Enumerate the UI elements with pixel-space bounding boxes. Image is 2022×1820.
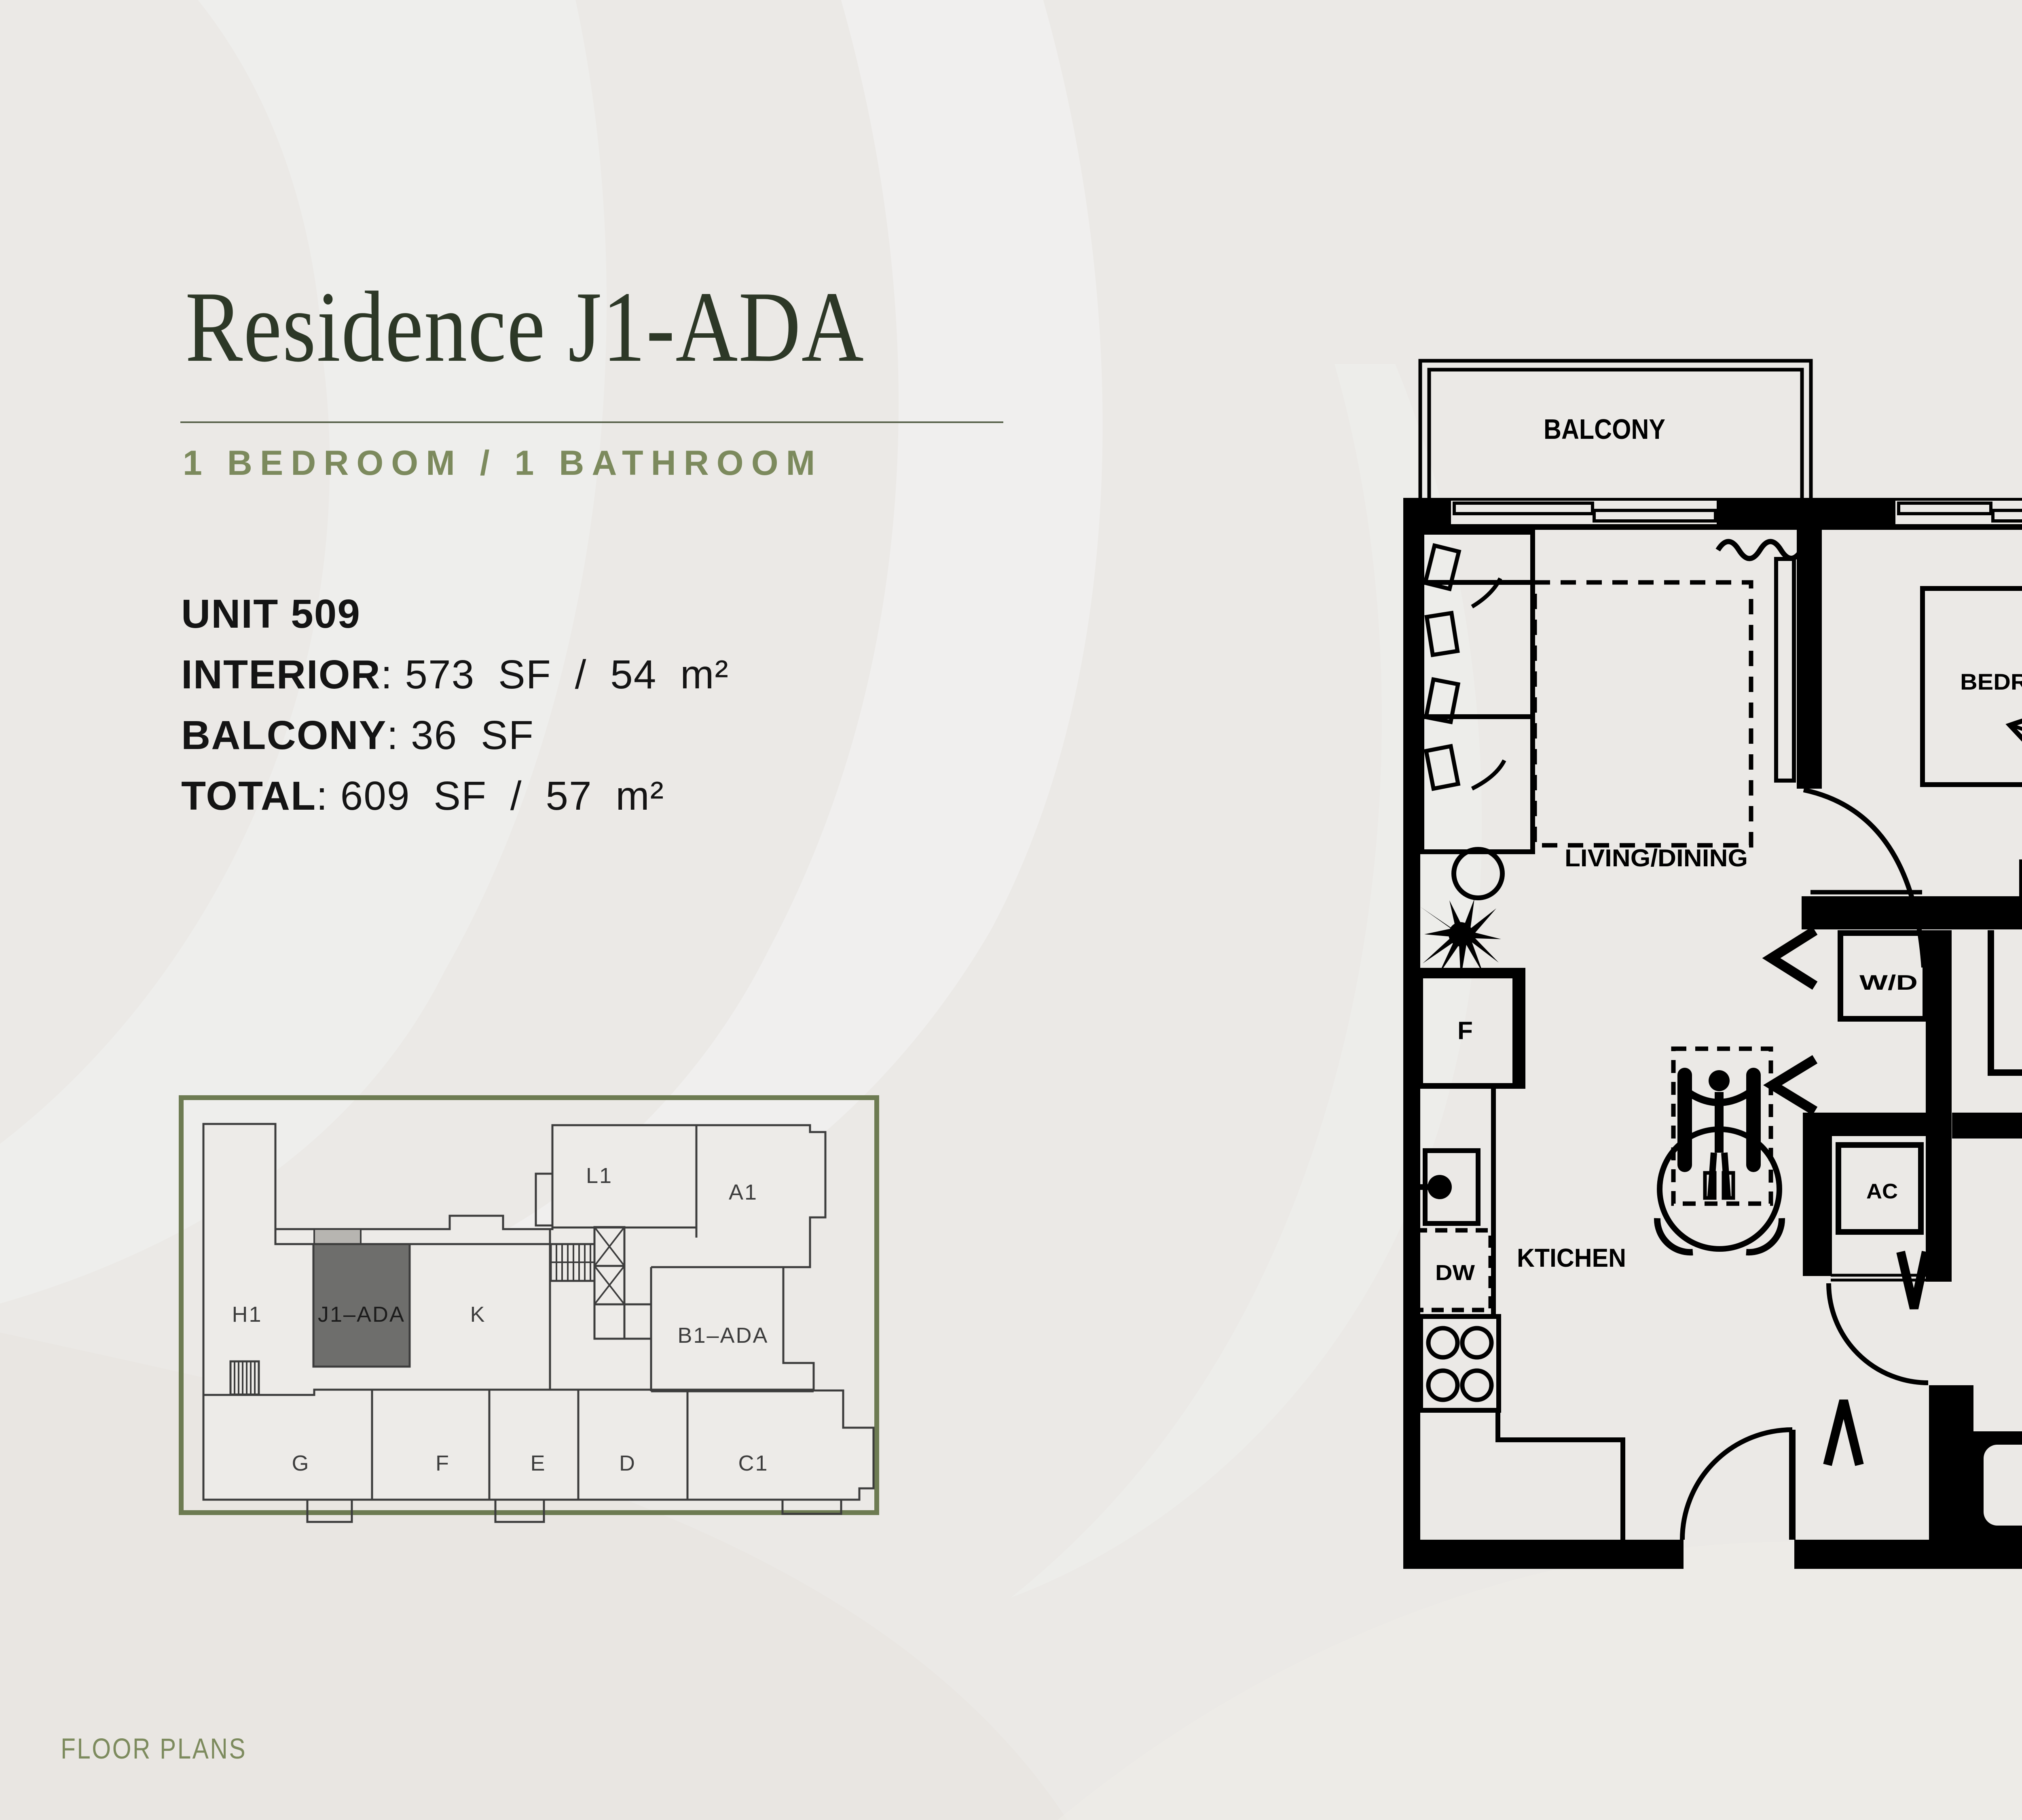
- svg-text:LIVING/DINING: LIVING/DINING: [1565, 844, 1748, 872]
- svg-text:E: E: [530, 1451, 546, 1475]
- svg-text:A1: A1: [729, 1180, 758, 1204]
- svg-text:J1–ADA: J1–ADA: [318, 1302, 405, 1327]
- svg-text:W/D: W/D: [1859, 971, 1918, 995]
- svg-text:KTICHEN: KTICHEN: [1517, 1243, 1626, 1272]
- svg-text:C1: C1: [738, 1451, 768, 1475]
- svg-text:L1: L1: [586, 1164, 613, 1188]
- svg-text:B1–ADA: B1–ADA: [677, 1323, 768, 1348]
- svg-text:D: D: [619, 1451, 636, 1475]
- svg-text:F: F: [436, 1451, 450, 1475]
- svg-text:G: G: [292, 1451, 310, 1475]
- svg-text:BEDROOM: BEDROOM: [1960, 669, 2022, 694]
- svg-text:AC: AC: [1866, 1180, 1898, 1203]
- svg-text:BALCONY: BALCONY: [1544, 413, 1665, 445]
- svg-text:H1: H1: [232, 1302, 262, 1327]
- svg-text:DW: DW: [1435, 1261, 1475, 1285]
- svg-text:F: F: [1457, 1017, 1473, 1045]
- svg-text:K: K: [470, 1302, 486, 1327]
